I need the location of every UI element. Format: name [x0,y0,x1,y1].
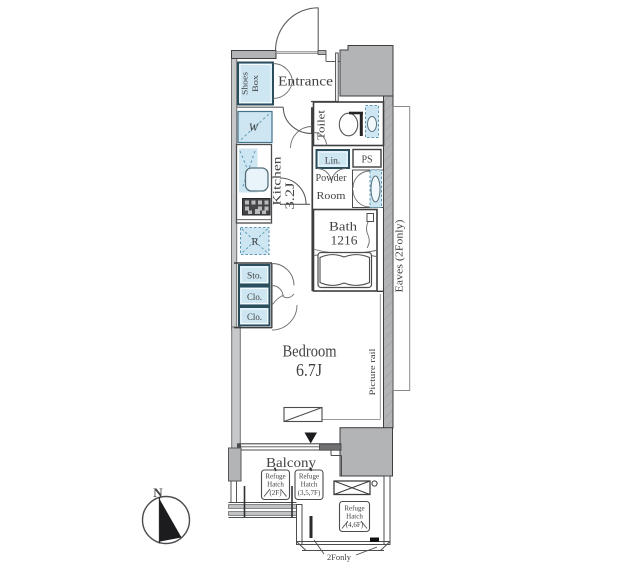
svg-text:PS: PS [361,155,372,166]
svg-text:Bedroom: Bedroom [283,342,337,361]
svg-text:Clo.: Clo. [247,292,262,302]
svg-text:Refuge: Refuge [299,473,319,481]
svg-text:N: N [153,485,163,500]
svg-text:Hatch: Hatch [301,481,318,489]
svg-text:Room: Room [317,191,346,202]
svg-text:Refuge: Refuge [344,505,364,513]
svg-text:Clo.: Clo. [247,312,262,322]
svg-text:(2F): (2F) [269,489,282,497]
svg-text:Hatch: Hatch [346,513,363,521]
svg-text:Sto.: Sto. [247,271,262,281]
svg-text:2Fonly: 2Fonly [327,552,352,562]
svg-text:Shoes: Shoes [240,72,250,95]
svg-text:Bath: Bath [329,219,358,234]
svg-text:Powder: Powder [316,173,348,184]
svg-text:Lin.: Lin. [325,157,341,167]
svg-text:W: W [249,122,260,134]
svg-text:(4,6F): (4,6F) [346,521,364,529]
svg-text:Box: Box [250,74,260,92]
svg-text:Eaves (2Fonly): Eaves (2Fonly) [394,219,406,292]
svg-text:Refuge: Refuge [265,473,285,481]
svg-text:3.2J: 3.2J [283,182,297,209]
svg-text:Entrance: Entrance [278,74,333,89]
svg-text:1216: 1216 [331,233,359,248]
svg-text:(3,5,7F): (3,5,7F) [298,489,321,497]
svg-text:6.7J: 6.7J [296,360,322,380]
svg-text:Balcony: Balcony [266,455,316,470]
svg-text:Picture rail: Picture rail [367,348,377,396]
svg-text:R: R [251,237,258,248]
svg-text:Hatch: Hatch [267,481,284,489]
